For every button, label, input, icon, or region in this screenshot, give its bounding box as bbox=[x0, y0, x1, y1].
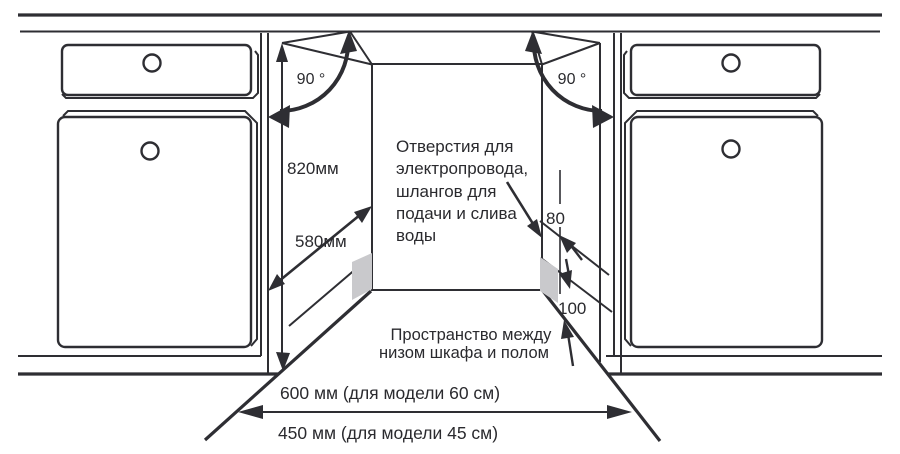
niche-floor-edge-left bbox=[205, 291, 371, 440]
right-door-knob bbox=[723, 141, 740, 158]
niche-height-label: 820мм bbox=[287, 159, 339, 178]
installation-diagram: 90 ° 90 ° 820мм 580мм Отверстия для элек… bbox=[0, 0, 900, 454]
hole-dim-label: 80 bbox=[546, 209, 565, 228]
holes-note-line3: шлангов для bbox=[396, 182, 496, 201]
right-angle-label: 90 ° bbox=[558, 71, 587, 88]
right-door-front bbox=[631, 117, 822, 347]
width-model45-label: 450 мм (для модели 45 см) bbox=[278, 423, 498, 443]
labels: 90 ° 90 ° 820мм 580мм Отверстия для элек… bbox=[278, 71, 586, 443]
holes-note-line5: воды bbox=[396, 226, 436, 245]
holes-note-line1: Отверстия для bbox=[396, 137, 514, 156]
width-model60-label: 600 мм (для модели 60 см) bbox=[280, 383, 500, 403]
right-cabinet bbox=[606, 33, 882, 374]
left-arc-side-arrow-icon bbox=[268, 105, 290, 128]
niche-ceiling-edge-right bbox=[542, 43, 600, 65]
dim-820-up-arrow-icon bbox=[276, 43, 288, 62]
dim-width-right-arrow-icon bbox=[607, 405, 632, 419]
holes-note-line2: электропровода, bbox=[396, 159, 528, 178]
holes-note-line4: подачи и слива bbox=[396, 204, 517, 223]
floor-note-line2: низом шкафа и полом bbox=[379, 344, 549, 362]
right-arc-side-arrow-icon bbox=[592, 105, 614, 128]
left-angle-label: 90 ° bbox=[297, 71, 326, 88]
left-swing-ray bbox=[282, 32, 350, 44]
right-drawer-bevel bbox=[624, 51, 820, 98]
niche-depth-label: 580мм bbox=[295, 232, 347, 251]
countertop bbox=[18, 15, 882, 32]
left-cabinet bbox=[18, 33, 278, 374]
right-drawer-knob bbox=[723, 55, 740, 72]
niche-ceiling-edge-left bbox=[282, 43, 372, 65]
floor-pointer-shaft bbox=[568, 334, 573, 366]
dim-580-upper-arrow-icon bbox=[354, 206, 372, 223]
dimension-width bbox=[238, 405, 632, 419]
left-door-bevel bbox=[63, 111, 257, 346]
dimension-820 bbox=[276, 43, 290, 371]
right-door-bevel bbox=[625, 111, 818, 346]
left-drawer-knob bbox=[144, 55, 161, 72]
left-door-front bbox=[58, 117, 251, 347]
right-plinth-panel bbox=[540, 257, 558, 303]
floor-note-line1: Пространство между bbox=[391, 326, 553, 344]
plinth-dim-label: 100 bbox=[558, 299, 586, 318]
left-door-knob bbox=[142, 143, 159, 160]
diagram-canvas: 90 ° 90 ° 820мм 580мм Отверстия для элек… bbox=[0, 0, 900, 454]
right-swing-ray bbox=[532, 32, 600, 44]
dim-820-down-arrow-icon bbox=[276, 352, 290, 371]
